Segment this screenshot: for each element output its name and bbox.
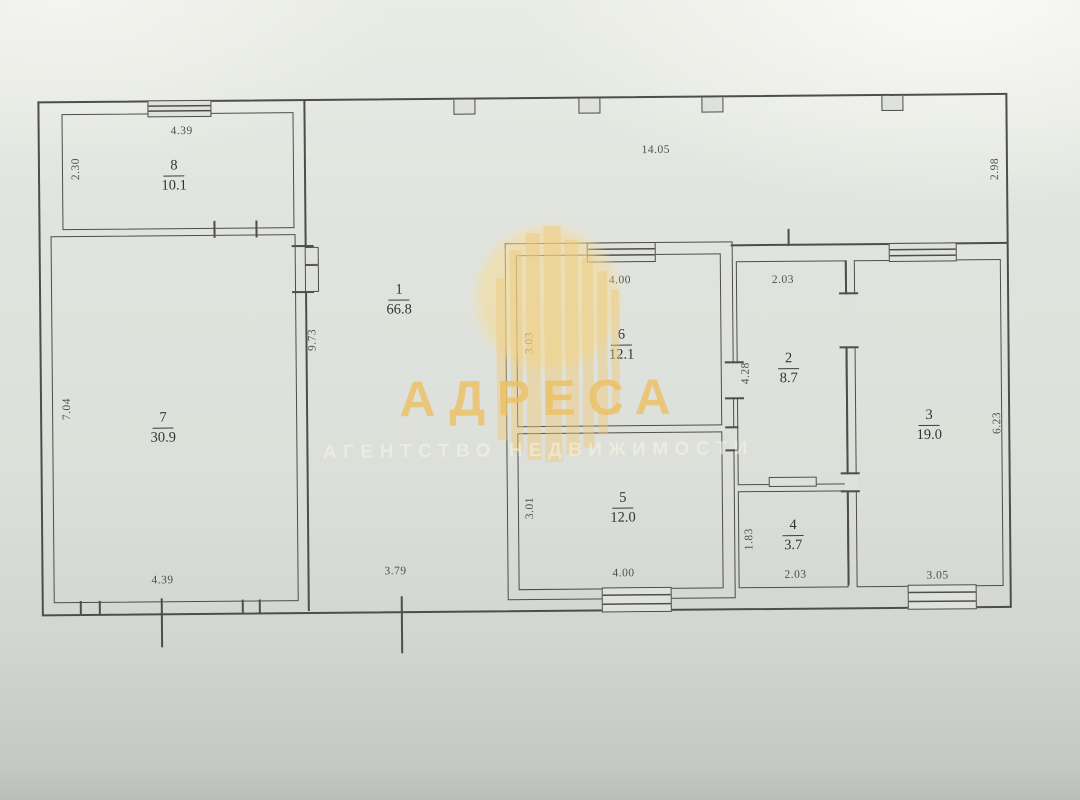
dim-room2-top: 2.03: [772, 274, 794, 286]
pilaster-notch: [453, 100, 475, 115]
room-8-area: 10.1: [161, 177, 187, 194]
window-room6-top: [587, 242, 656, 263]
room-3-number: 3: [918, 407, 939, 426]
room-6-area: 12.1: [609, 346, 635, 363]
room-7-number: 7: [152, 410, 173, 429]
dim-room3-right: 6.23: [991, 412, 1003, 434]
room-5-label: 5 12.0: [610, 488, 636, 526]
room-8-label: 8 10.1: [161, 156, 187, 194]
dim-room6-left: 3.03: [523, 332, 535, 354]
room-7-area: 30.9: [151, 429, 177, 446]
door-tick: [840, 346, 859, 348]
room-2-number: 2: [778, 350, 799, 369]
room-6-number: 6: [611, 327, 632, 346]
room-1-label: 1 66.8: [386, 280, 412, 318]
dim-room8-top: 4.39: [171, 125, 193, 137]
dim-room3-bottom: 3.05: [926, 569, 948, 581]
dim-room7-bottom: 4.39: [151, 574, 173, 586]
dim-room4-bottom: 2.03: [784, 569, 806, 581]
room-4-number: 4: [782, 517, 803, 536]
pilaster-notch: [881, 96, 903, 111]
window-room5-bottom: [602, 587, 672, 613]
door-tick: [841, 472, 860, 474]
pilaster-notch: [578, 98, 600, 113]
window-room8-top: [147, 100, 211, 118]
door-jamb: [305, 247, 319, 265]
dim-hall-wall: 9.73: [306, 329, 318, 351]
dim-tick: [788, 229, 790, 246]
door-tick: [725, 397, 744, 399]
door-tick: [841, 490, 860, 492]
room-8-number: 8: [163, 157, 184, 176]
dim-room8-left: 2.30: [70, 158, 82, 180]
room-2-label: 2 8.7: [778, 349, 800, 387]
room-6-label: 6 12.1: [609, 326, 635, 364]
wall-gap-block-right: [729, 428, 735, 450]
dim-room5-left: 3.01: [524, 497, 536, 519]
window-room3-top: [889, 242, 957, 262]
door-tick: [839, 292, 858, 294]
pilaster-notch: [701, 97, 723, 112]
dim-room2-left: 4.28: [740, 362, 752, 384]
room-1-area: 66.8: [386, 301, 412, 318]
door-tick: [725, 449, 738, 451]
dim-room4-left: 1.83: [743, 528, 755, 550]
wall-stub: [80, 601, 82, 614]
dim-room5-bottom: 4.00: [612, 567, 634, 579]
dim-hall-bottom: 3.79: [384, 565, 406, 577]
wall-tick: [213, 221, 215, 238]
door-jamb: [305, 265, 319, 292]
dim-hall-right: 2.98: [989, 158, 1001, 180]
door-gap-room6-room2: [729, 363, 740, 398]
wall-tick: [255, 220, 257, 237]
floorplan: 8 10.1 7 30.9 1 66.8 6 12.1 5 12.0 2 8.7…: [0, 0, 1080, 800]
dim-room7-left: 7.04: [61, 398, 73, 420]
room-4-area: 3.7: [783, 537, 804, 554]
room-2-area: 8.7: [778, 370, 799, 387]
floorplan-photo: 8 10.1 7 30.9 1 66.8 6 12.1 5 12.0 2 8.7…: [0, 0, 1080, 800]
dim-room6-top: 4.00: [609, 274, 631, 286]
wall-gap-room3-left: [845, 474, 858, 491]
wall-stub: [242, 600, 244, 613]
room-3-area: 19.0: [917, 426, 943, 443]
room-7-label: 7 30.9: [150, 409, 176, 447]
wall-stub: [259, 599, 261, 612]
room-1-number: 1: [388, 281, 409, 300]
window-room3-bottom: [908, 584, 977, 610]
door-gap-room3: [843, 294, 856, 347]
room-3-label: 3 19.0: [916, 406, 942, 444]
door-tick: [725, 426, 738, 428]
wall-stub: [99, 601, 101, 614]
room-5-area: 12.0: [610, 509, 636, 526]
dim-hall-top: 14.05: [642, 144, 670, 156]
room-4-label: 4 3.7: [782, 516, 804, 554]
door-jamb-rooms-2-4: [769, 477, 817, 487]
room-5-number: 5: [612, 490, 633, 509]
